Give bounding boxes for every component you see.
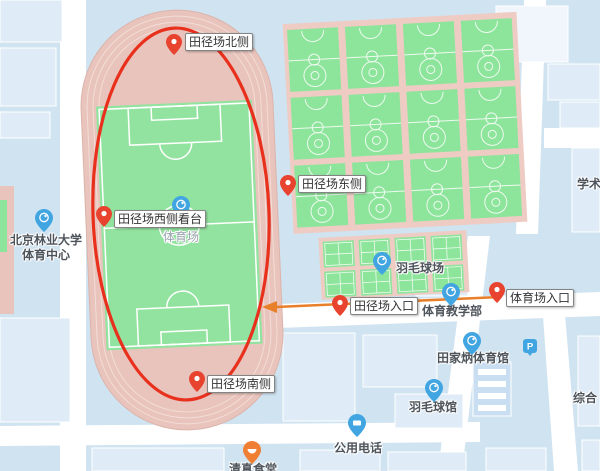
- basketball-court: [410, 157, 464, 222]
- pin-label-track-entrance[interactable]: 田径场入口: [350, 297, 418, 315]
- basketball-courts: [283, 12, 528, 234]
- map-canvas[interactable]: 体育场 羽毛球场 体育教学部 田家炳体育馆 羽毛球馆 北京林业大学 体育中心 公…: [0, 0, 600, 471]
- building: [582, 440, 600, 471]
- building: [560, 102, 600, 128]
- sports-center-icon[interactable]: [35, 209, 53, 232]
- pe-dept-label[interactable]: 体育教学部: [422, 304, 482, 318]
- basketball-court: [291, 95, 345, 160]
- pin-stadium-entrance[interactable]: [489, 282, 505, 303]
- basketball-court: [403, 21, 457, 86]
- gym-icon[interactable]: [463, 332, 481, 355]
- badminton-court: [323, 240, 355, 268]
- pin-track-entrance[interactable]: [332, 295, 348, 316]
- sports-center-label-line2[interactable]: 体育中心: [22, 248, 70, 262]
- basketball-court: [287, 27, 341, 92]
- badminton-court: [430, 234, 462, 262]
- building: [0, 112, 50, 138]
- basketball-court: [294, 163, 348, 228]
- canteen-icon[interactable]: [243, 441, 261, 464]
- pin-label-east[interactable]: 田径场东侧: [298, 175, 366, 193]
- left-edge-pitch: [0, 186, 14, 314]
- badminton-hall-label[interactable]: 羽毛球馆: [409, 400, 457, 414]
- building: [548, 64, 600, 100]
- building: [578, 336, 600, 426]
- pin-label-west-stands[interactable]: 田径场西侧看台: [114, 210, 206, 228]
- pin-west-stands[interactable]: [96, 206, 112, 227]
- public-phone-icon[interactable]: [348, 414, 366, 437]
- basketball-court: [345, 24, 399, 89]
- building-gym: [473, 362, 511, 416]
- academic-building-label: 学术: [577, 177, 600, 191]
- basketball-court: [464, 86, 518, 151]
- building: [0, 0, 62, 42]
- sports-center-label-line1[interactable]: 北京林业大学: [10, 233, 82, 247]
- public-phone-label[interactable]: 公用电话: [334, 441, 382, 455]
- pe-dept-icon[interactable]: [442, 283, 460, 306]
- pin-south[interactable]: [189, 371, 205, 392]
- basketball-court: [468, 154, 522, 219]
- pin-east[interactable]: [280, 175, 296, 196]
- building: [0, 318, 70, 422]
- road: [544, 128, 600, 148]
- building: [486, 448, 546, 471]
- building: [283, 333, 355, 421]
- complex-building-label: 综合: [573, 391, 597, 405]
- badminton-courts-label[interactable]: 羽毛球场: [396, 261, 444, 275]
- pin-label-stadium-entrance[interactable]: 体育场入口: [506, 289, 574, 307]
- pin-label-south[interactable]: 田径场南侧: [207, 375, 275, 393]
- badminton-court: [324, 270, 356, 298]
- parking-icon[interactable]: P: [523, 339, 537, 357]
- building: [92, 448, 224, 471]
- base-map: [0, 0, 600, 471]
- badminton-courts-icon[interactable]: [373, 252, 391, 275]
- badminton-hall-icon[interactable]: [425, 379, 443, 402]
- basketball-court: [349, 92, 403, 157]
- pin-north[interactable]: [166, 34, 182, 55]
- building: [0, 48, 56, 106]
- badminton-court: [395, 236, 427, 264]
- building: [388, 452, 466, 471]
- basketball-court: [461, 18, 515, 83]
- stadium-ground-label: 体育场: [163, 230, 199, 244]
- pin-label-north[interactable]: 田径场北侧: [185, 33, 253, 51]
- svg-text:P: P: [527, 342, 534, 353]
- basketball-court: [406, 89, 460, 154]
